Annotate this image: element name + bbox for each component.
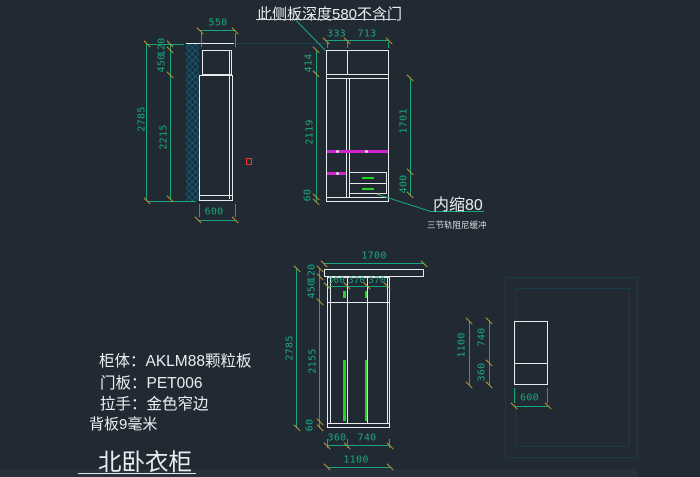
datum-line <box>233 43 330 44</box>
dim-line <box>296 269 297 428</box>
side-panel-inner-line <box>229 51 230 199</box>
dim-label: 60 <box>302 189 313 202</box>
drawer-divider <box>350 183 387 184</box>
dim-label: 450 <box>306 280 317 299</box>
dim-label: 414 <box>303 53 314 72</box>
dim-ext <box>235 33 236 47</box>
base-line <box>327 197 388 198</box>
dim-label: 1701 <box>398 108 409 133</box>
leader-line <box>377 194 430 212</box>
drawer-handle <box>362 188 374 191</box>
dim-ext <box>235 204 236 217</box>
dim-line <box>326 40 389 41</box>
spec-handle: 拉手：金色窄边 <box>100 392 209 414</box>
dim-label: 1700 <box>361 250 386 261</box>
drawer-handle <box>362 177 374 180</box>
dim-line <box>469 321 470 386</box>
door-edge <box>330 278 331 423</box>
wall-hatch <box>186 43 199 201</box>
side-view-divider <box>515 363 547 364</box>
dim-label: 360 <box>328 433 347 444</box>
dim-label: 2215 <box>159 124 170 149</box>
dim-label: 370 <box>368 276 385 286</box>
dim-line <box>200 30 235 31</box>
center-divider <box>346 78 347 197</box>
note-inset: 内缩80 <box>433 191 483 215</box>
upper-rail-line <box>327 302 389 303</box>
wall-top-line <box>186 43 234 44</box>
shelf-line <box>327 78 388 79</box>
dim-line <box>170 44 171 199</box>
top-section-divider <box>347 51 348 74</box>
dim-label: 2785 <box>285 335 296 360</box>
dim-label: 2785 <box>137 106 148 131</box>
dim-ext <box>388 42 389 48</box>
shelf-line <box>327 74 388 75</box>
door-handle <box>365 360 368 421</box>
dim-line <box>410 78 411 196</box>
dim-label: 60 <box>305 419 316 432</box>
dim-label: 333 <box>327 29 346 40</box>
dim-ext <box>514 388 515 403</box>
spec-back-panel: 背板9毫米 <box>89 413 157 434</box>
dim-label: 1100 <box>343 455 368 466</box>
rod-bracket <box>336 150 339 153</box>
dim-line <box>198 220 235 221</box>
dim-label: 2155 <box>307 348 318 373</box>
dim-line <box>324 263 424 264</box>
title-underline <box>78 473 196 474</box>
dim-ext <box>201 33 202 47</box>
door-divider <box>347 278 348 423</box>
dim-label: 370 <box>348 276 365 286</box>
side-view-outline <box>514 321 548 386</box>
dim-label: 713 <box>358 29 377 40</box>
door-handle <box>343 291 346 298</box>
note-side-panel-depth: 此侧板深度580不含门 <box>257 3 402 24</box>
door-handle <box>343 360 346 421</box>
selection-marker <box>246 158 252 165</box>
door-handle <box>365 291 368 298</box>
side-base-line <box>199 195 233 196</box>
dim-label: 360 <box>477 362 488 381</box>
dim-label: 2119 <box>304 119 315 144</box>
dim-label: 450 <box>156 54 167 73</box>
door-edge <box>387 278 388 423</box>
cad-canvas[interactable]: 550 600 2785 120 450 2215 333 713 <box>0 0 700 477</box>
side-top-cabinet-panel <box>202 50 232 75</box>
side-main-cabinet-panel <box>199 75 234 201</box>
dim-line <box>327 445 390 446</box>
dim-label: 740 <box>477 327 488 346</box>
spec-body-material: 柜体：AKLM88颗粒板 <box>99 349 251 371</box>
dim-label: 600 <box>205 207 224 218</box>
dim-line <box>319 269 320 428</box>
note-underline <box>256 19 396 20</box>
dim-label: 400 <box>398 175 409 194</box>
dim-label: 1100 <box>456 332 467 357</box>
door-divider <box>367 278 368 423</box>
leader-line <box>296 20 326 51</box>
base-line <box>327 423 389 424</box>
dim-label: 600 <box>520 392 539 403</box>
dim-ext <box>199 204 200 217</box>
dim-label: 550 <box>209 18 228 29</box>
drawing-title: 北卧衣柜 <box>98 443 192 477</box>
dim-label: 360 <box>328 276 345 286</box>
spec-door-material: 门板：PET006 <box>100 371 203 393</box>
dim-line <box>514 406 548 407</box>
dim-ext <box>547 388 548 403</box>
note-rail: 三节轨阻尼缓冲 <box>427 219 487 231</box>
door-view-outline <box>327 277 390 428</box>
dim-line <box>327 467 390 468</box>
dim-line <box>489 321 490 386</box>
dim-label: 740 <box>358 433 377 444</box>
